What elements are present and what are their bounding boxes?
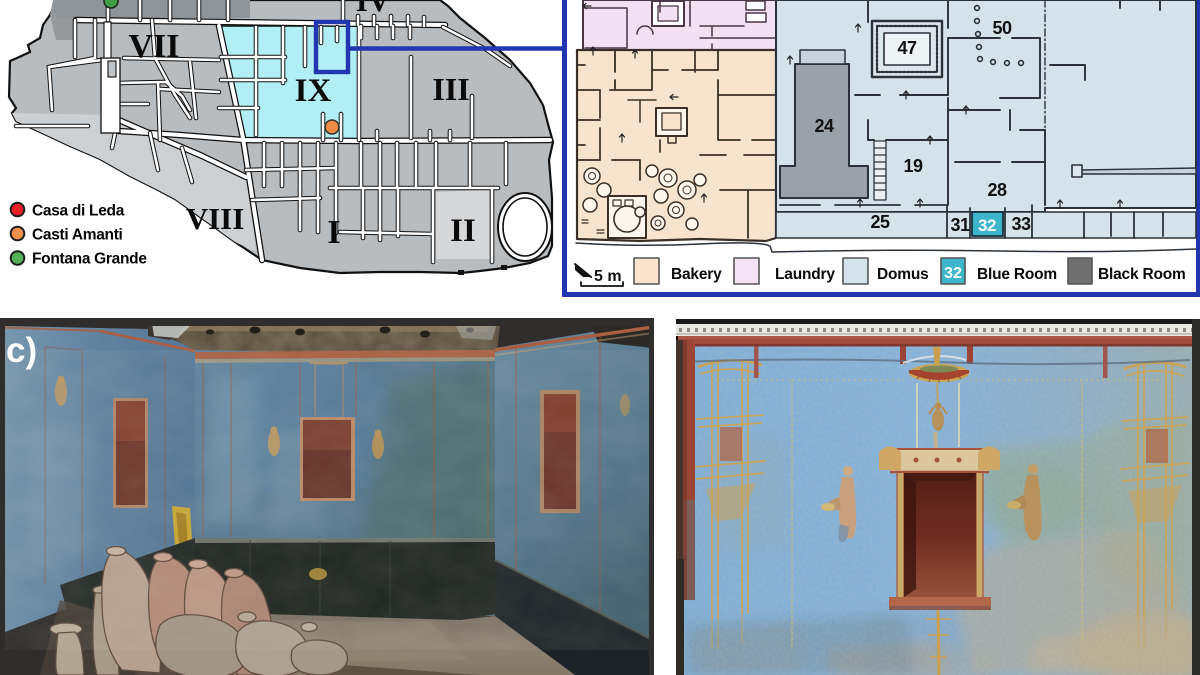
svg-text:Black Room: Black Room xyxy=(1098,266,1186,283)
svg-text:31: 31 xyxy=(950,215,970,235)
svg-text:Domus: Domus xyxy=(877,266,929,283)
svg-text:Bakery: Bakery xyxy=(671,266,722,283)
svg-text:28: 28 xyxy=(987,180,1007,200)
svg-text:32: 32 xyxy=(944,265,962,282)
svg-text:32: 32 xyxy=(978,216,996,235)
svg-text:50: 50 xyxy=(992,18,1012,38)
svg-text:33: 33 xyxy=(1011,214,1031,234)
svg-text:25: 25 xyxy=(870,212,890,232)
svg-text:Blue Room: Blue Room xyxy=(977,266,1057,283)
svg-text:24: 24 xyxy=(814,116,834,136)
svg-text:19: 19 xyxy=(903,156,923,176)
svg-text:Laundry: Laundry xyxy=(775,266,835,283)
svg-text:c): c) xyxy=(6,331,37,370)
svg-text:47: 47 xyxy=(897,38,917,58)
svg-text:5 m: 5 m xyxy=(594,268,622,285)
